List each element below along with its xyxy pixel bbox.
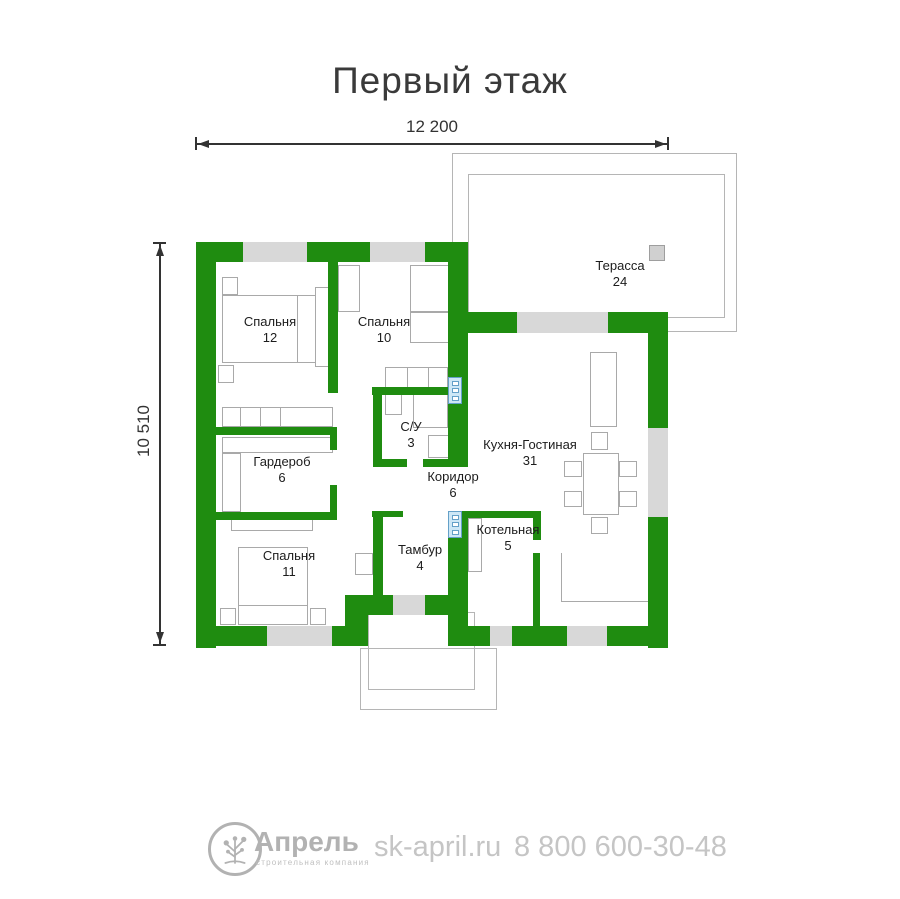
window	[490, 626, 512, 646]
wall-segment	[345, 595, 368, 646]
room-area: 6	[222, 470, 342, 486]
floor-plan-canvas: Первый этаж 12 200 10 510 Спальня 12 Спа…	[0, 0, 900, 899]
room-name: Кухня-Гостиная	[460, 437, 600, 453]
room-name: С/У	[351, 419, 471, 435]
room-name: Спальня	[324, 314, 444, 330]
porch-outline-outer	[360, 648, 497, 710]
room-label-bedroom-11: Спальня 11	[229, 548, 349, 580]
wall-segment	[196, 242, 216, 648]
room-label-terrace: Терасса 24	[560, 258, 680, 290]
room-area: 6	[393, 485, 513, 501]
wall-segment	[533, 553, 540, 646]
room-label-boiler-room: Котельная 5	[448, 522, 568, 554]
company-name: Апрель	[254, 826, 359, 858]
furniture-divider	[260, 407, 261, 427]
nightstand	[220, 608, 236, 625]
window	[517, 312, 608, 333]
room-label-kitchen-living: Кухня-Гостиная 31	[460, 437, 600, 469]
room-name: Котельная	[448, 522, 568, 538]
room-label-bedroom-12: Спальня 12	[210, 314, 330, 346]
window	[370, 242, 425, 262]
tree-icon	[214, 828, 256, 870]
terrace-outline-inner	[468, 174, 725, 318]
room-name: Коридор	[393, 469, 513, 485]
wardrobe	[385, 367, 448, 388]
room-area: 11	[229, 564, 349, 580]
wardrobe	[338, 265, 360, 312]
room-label-bedroom-10: Спальня 10	[324, 314, 444, 346]
wall-segment	[330, 485, 337, 512]
room-area: 5	[448, 538, 568, 554]
nightstand	[218, 365, 234, 383]
furniture-divider	[240, 407, 241, 427]
sink	[385, 393, 402, 415]
room-area: 24	[560, 274, 680, 290]
wardrobe	[222, 407, 333, 427]
room-area: 31	[460, 453, 600, 469]
window	[243, 242, 307, 262]
window	[648, 428, 668, 517]
furniture-divider	[428, 367, 429, 388]
wall-segment	[372, 387, 450, 395]
wall-segment	[373, 459, 407, 467]
room-area: 4	[360, 558, 480, 574]
nightstand	[222, 277, 238, 295]
company-tagline: строительная компания	[256, 858, 370, 867]
chair	[619, 491, 637, 507]
furniture-divider	[407, 367, 408, 388]
room-name: Спальня	[229, 548, 349, 564]
kitchen-counter	[590, 352, 617, 427]
wall-segment	[216, 512, 337, 520]
desk	[410, 265, 450, 312]
nightstand	[310, 608, 326, 625]
furniture-divider	[280, 407, 281, 427]
website-link[interactable]: sk-april.ru	[374, 831, 501, 864]
chair	[564, 491, 582, 507]
phone-number: 8 800 600-30-48	[514, 831, 727, 864]
room-label-wardrobe: Гардероб 6	[222, 454, 342, 486]
room-area: 10	[324, 330, 444, 346]
chair	[619, 461, 637, 477]
window	[567, 626, 607, 646]
room-area: 3	[351, 435, 471, 451]
room-label-corridor: Коридор 6	[393, 469, 513, 501]
room-label-bathroom: С/У 3	[351, 419, 471, 451]
room-area: 12	[210, 330, 330, 346]
wall-segment	[423, 459, 450, 467]
wall-segment	[196, 242, 468, 262]
chair	[591, 517, 608, 534]
room-name: Спальня	[210, 314, 330, 330]
entrance-door	[393, 595, 425, 615]
wall-segment	[372, 511, 403, 517]
shelf	[222, 437, 333, 453]
wall-segment	[330, 427, 337, 450]
vent-shaft	[448, 377, 462, 404]
wall-segment	[216, 427, 337, 435]
sofa	[561, 553, 648, 602]
room-name: Гардероб	[222, 454, 342, 470]
window	[267, 626, 332, 646]
furniture-divider	[238, 605, 308, 606]
wall-segment	[448, 626, 668, 646]
room-name: Терасса	[560, 258, 680, 274]
